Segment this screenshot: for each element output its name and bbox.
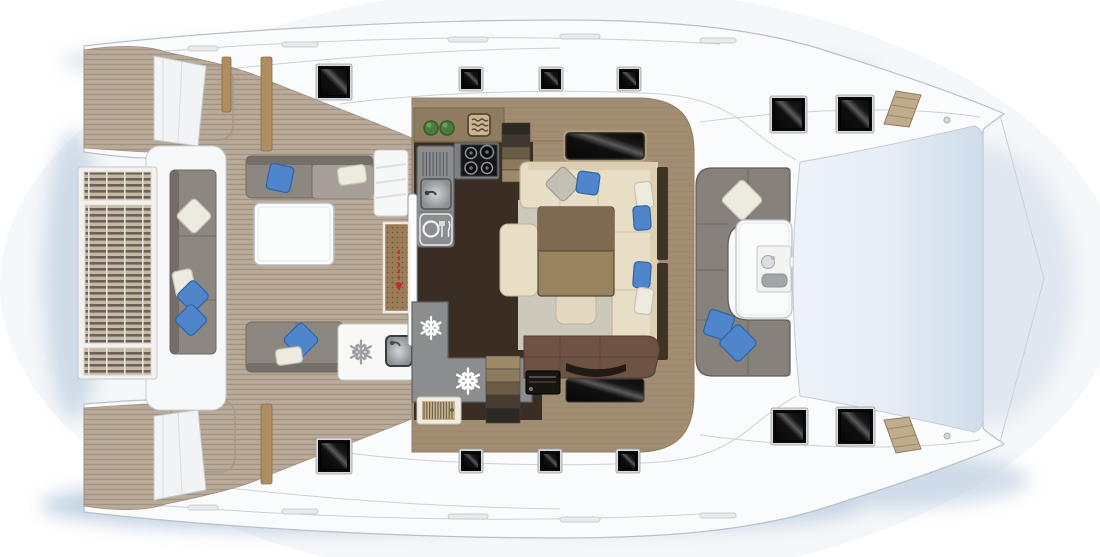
swim-platform-grating [78, 167, 157, 379]
floorplan-svg: Catamaran yacht deck and saloon floor pl… [0, 0, 1100, 557]
dinette-table [538, 207, 614, 296]
deck-hatch [316, 438, 352, 474]
trampoline [793, 126, 983, 432]
white-pillow [634, 181, 654, 209]
deck-hatch [771, 408, 808, 445]
white-pillow [275, 346, 303, 365]
wood-trim-post-top [222, 57, 231, 112]
blue-pillow [633, 261, 652, 288]
deck-hatch [538, 449, 562, 473]
window-mullion [657, 167, 668, 260]
sink-icon [421, 179, 451, 209]
deck-hatch [836, 95, 874, 133]
deck-hatch [770, 96, 807, 133]
steps-port-hull [486, 356, 520, 423]
deck-hatch [316, 64, 352, 100]
dinette-armchair [500, 224, 538, 296]
bow-fitting [944, 433, 950, 439]
cockpit-table [254, 203, 334, 265]
catamaran-floorplan: Catamaran yacht deck and saloon floor pl… [0, 0, 1100, 557]
port-transom-step [154, 56, 206, 146]
blue-pillow [266, 163, 295, 193]
deck-hatch [616, 449, 640, 473]
white-pillow [337, 164, 367, 186]
saloon-window-panel [564, 131, 646, 161]
starboard-transom-step [154, 410, 206, 500]
wood-trim-post-top-2 [261, 57, 272, 151]
bow-fitting [944, 117, 950, 123]
white-pillow [634, 287, 654, 315]
cockpit-shelf-unit [374, 150, 408, 216]
plant-icon [424, 121, 438, 135]
hifi-unit [526, 371, 560, 394]
tv-screen [566, 379, 644, 402]
wood-trim-post-bottom [261, 404, 272, 484]
bottle-rack-icon [417, 397, 461, 424]
blue-pillow [633, 205, 652, 230]
dinette-stool [556, 292, 596, 324]
blue-pillow [576, 171, 601, 196]
deck-hatch [836, 407, 875, 446]
cooktop-icon [454, 143, 499, 179]
deck-hatch [617, 67, 641, 91]
deck-hatch [459, 449, 483, 473]
microwave-icon [468, 114, 490, 136]
deck-hatch [539, 67, 563, 91]
deck-hatch [459, 67, 483, 91]
plant-icon [440, 121, 454, 135]
galley-sink-counter [417, 146, 454, 247]
door-mat [384, 223, 409, 312]
forward-console [757, 246, 791, 292]
cockpit-wet-bar [338, 324, 416, 380]
